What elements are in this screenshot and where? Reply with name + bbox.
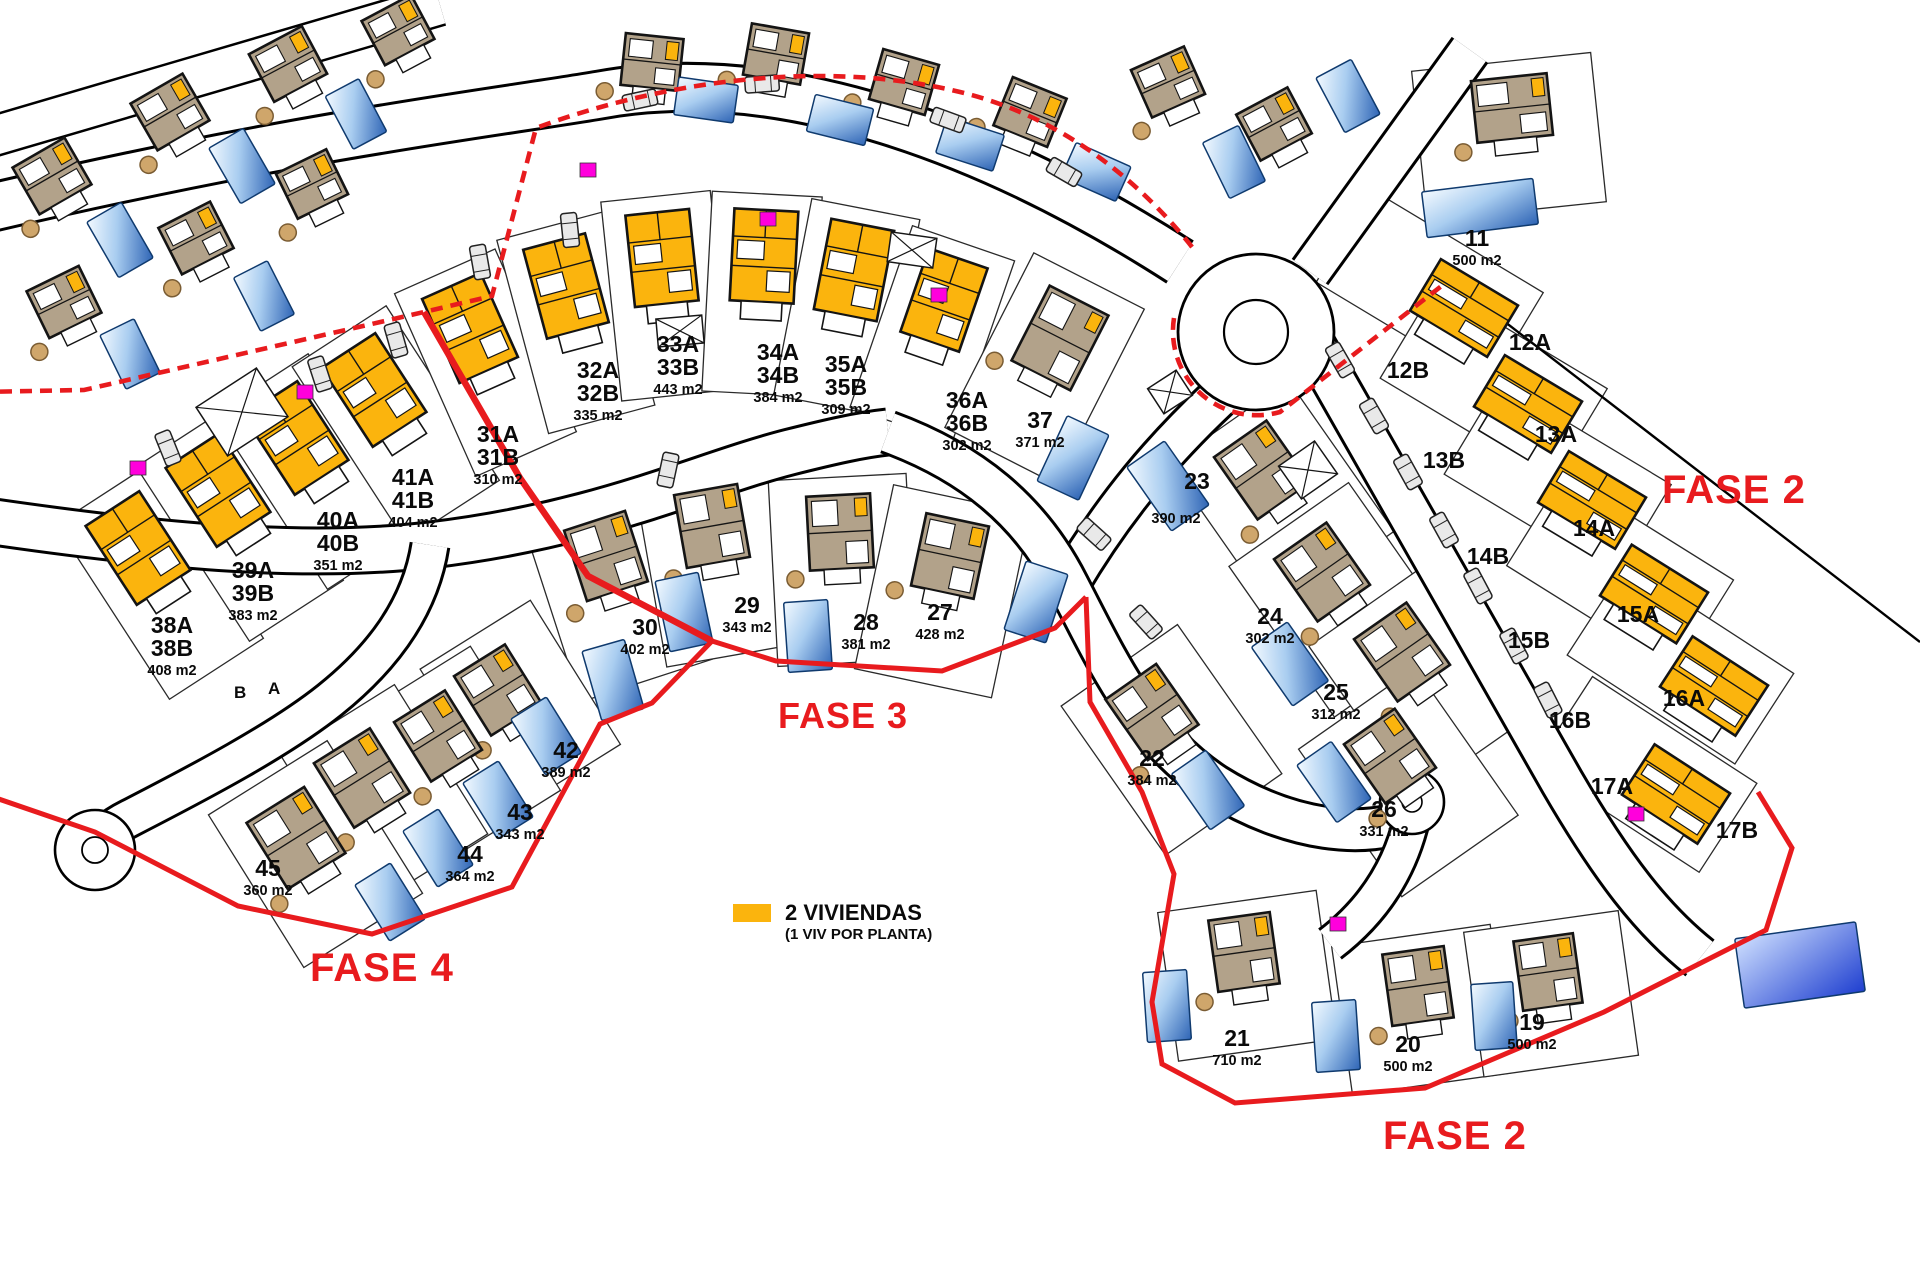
svg-text:36B: 36B — [946, 410, 988, 436]
site-plan-svg: 38A38B408 m239A39B383 m240A40B351 m241A4… — [0, 0, 1920, 1280]
house-context — [137, 202, 241, 300]
svg-text:500 m2: 500 m2 — [1507, 1037, 1556, 1053]
svg-text:389 m2: 389 m2 — [541, 765, 590, 781]
svg-text:384 m2: 384 m2 — [753, 390, 802, 406]
plot-label-34: 34A34B384 m2 — [753, 339, 802, 406]
magenta-marker — [931, 288, 947, 302]
plot-label-15: 15B — [1508, 627, 1550, 653]
svg-text:335 m2: 335 m2 — [573, 408, 622, 424]
plot-label-12: 12B — [1387, 357, 1429, 383]
phase-label-fase4: FASE 4 — [310, 948, 454, 988]
phase-label-fase2-right: FASE 2 — [1662, 470, 1806, 510]
pool — [87, 202, 154, 277]
pool — [674, 77, 739, 123]
magenta-marker — [130, 461, 146, 475]
plot-label-32: 32A32B335 m2 — [573, 357, 622, 424]
svg-text:364 m2: 364 m2 — [445, 869, 494, 885]
svg-text:383 m2: 383 m2 — [228, 608, 277, 624]
plot-label-12: 12A — [1509, 329, 1551, 355]
plot-label-41: 41A41B404 m2 — [388, 464, 437, 531]
svg-text:15A: 15A — [1617, 601, 1659, 627]
svg-text:28: 28 — [853, 609, 879, 635]
svg-text:302 m2: 302 m2 — [942, 438, 991, 454]
pool — [1143, 970, 1192, 1043]
legend-swatch — [733, 904, 771, 922]
svg-text:23: 23 — [1184, 468, 1210, 494]
svg-text:443 m2: 443 m2 — [653, 382, 702, 398]
svg-text:21: 21 — [1224, 1025, 1250, 1051]
plot-label-17: 17B — [1716, 817, 1758, 843]
svg-text:384 m2: 384 m2 — [1127, 773, 1176, 789]
svg-text:408 m2: 408 m2 — [147, 663, 196, 679]
svg-text:35B: 35B — [825, 374, 867, 400]
svg-text:24: 24 — [1257, 603, 1283, 629]
pool — [1312, 1000, 1361, 1073]
svg-text:343 m2: 343 m2 — [495, 827, 544, 843]
svg-text:39B: 39B — [232, 580, 274, 606]
svg-text:331 m2: 331 m2 — [1359, 824, 1408, 840]
magenta-marker — [1628, 807, 1644, 821]
plot-label-38: 38A38B408 m2 — [147, 612, 196, 679]
svg-text:381 m2: 381 m2 — [841, 637, 890, 653]
svg-text:45: 45 — [255, 855, 281, 881]
svg-text:500 m2: 500 m2 — [1383, 1059, 1432, 1075]
legend-subtitle: (1 VIV POR PLANTA) — [785, 925, 932, 945]
svg-text:22: 22 — [1139, 745, 1165, 771]
svg-text:30: 30 — [632, 614, 658, 640]
svg-text:41B: 41B — [392, 487, 434, 513]
svg-text:25: 25 — [1323, 679, 1349, 705]
svg-text:17B: 17B — [1716, 817, 1758, 843]
svg-text:14A: 14A — [1573, 515, 1615, 541]
plot-label-17: 17A — [1591, 773, 1633, 799]
plot-label-15: 15A — [1617, 601, 1659, 627]
svg-text:500 m2: 500 m2 — [1452, 253, 1501, 269]
svg-text:27: 27 — [927, 599, 953, 625]
svg-text:309 m2: 309 m2 — [821, 402, 870, 418]
plot-label-16: 16B — [1549, 707, 1591, 733]
car — [1129, 604, 1164, 640]
plot-label-36: 36A36B302 m2 — [942, 387, 991, 454]
svg-text:17A: 17A — [1591, 773, 1633, 799]
plot-label-35: 35A35B309 m2 — [821, 351, 870, 418]
plot-label-23: 23 — [1184, 468, 1210, 494]
house-context — [1109, 46, 1211, 142]
house-context — [5, 266, 108, 363]
svg-text:42: 42 — [553, 737, 579, 763]
svg-text:19: 19 — [1519, 1009, 1545, 1035]
plot-label-16: 16A — [1663, 685, 1705, 711]
svg-text:14B: 14B — [1467, 543, 1509, 569]
svg-text:12B: 12B — [1387, 357, 1429, 383]
svg-text:38B: 38B — [151, 635, 193, 661]
plot-label-40: 40A40B351 m2 — [313, 507, 362, 574]
plot-label-13: 13A — [1535, 421, 1577, 447]
svg-text:402 m2: 402 m2 — [620, 642, 669, 658]
svg-text:31B: 31B — [477, 444, 519, 470]
pool — [1316, 59, 1380, 133]
svg-text:43: 43 — [507, 799, 533, 825]
plot-label-31: 31A31B310 m2 — [473, 421, 522, 488]
svg-text:710 m2: 710 m2 — [1212, 1053, 1261, 1069]
svg-text:371 m2: 371 m2 — [1015, 435, 1064, 451]
svg-text:29: 29 — [734, 592, 760, 618]
phase-label-fase3: FASE 3 — [778, 698, 908, 734]
svg-text:26: 26 — [1371, 796, 1397, 822]
legend: 2 VIVIENDAS (1 VIV POR PLANTA) — [733, 900, 932, 945]
svg-text:15B: 15B — [1508, 627, 1550, 653]
svg-text:351 m2: 351 m2 — [313, 558, 362, 574]
svg-text:390 m2: 390 m2 — [1151, 511, 1200, 527]
svg-text:428 m2: 428 m2 — [915, 627, 964, 643]
svg-text:302 m2: 302 m2 — [1245, 631, 1294, 647]
plot-label-23: 390 m2 — [1151, 511, 1200, 527]
plot-label-14: 14B — [1467, 543, 1509, 569]
svg-text:37: 37 — [1027, 407, 1053, 433]
plot-label-39: 39A39B383 m2 — [228, 557, 277, 624]
svg-text:44: 44 — [457, 841, 483, 867]
culdesac-left-island — [82, 837, 108, 863]
svg-text:20: 20 — [1395, 1031, 1421, 1057]
site-plan: 38A38B408 m239A39B383 m240A40B351 m241A4… — [0, 0, 1920, 1280]
magenta-marker — [297, 385, 313, 399]
construction-x-marker — [887, 232, 937, 268]
svg-text:16A: 16A — [1663, 685, 1705, 711]
phase-label-fase2-bottom: FASE 2 — [1383, 1116, 1527, 1156]
pool — [233, 261, 294, 332]
street-letter-b: B — [234, 684, 246, 701]
magenta-marker — [1330, 917, 1346, 931]
plot-label-13: 13B — [1423, 447, 1465, 473]
svg-text:310 m2: 310 m2 — [473, 472, 522, 488]
svg-text:13B: 13B — [1423, 447, 1465, 473]
roundabout-island — [1224, 300, 1288, 364]
legend-title: 2 VIVIENDAS — [785, 900, 932, 925]
car — [560, 212, 579, 247]
plot-label-14: 14A — [1573, 515, 1615, 541]
svg-text:33B: 33B — [657, 354, 699, 380]
svg-text:312 m2: 312 m2 — [1311, 707, 1360, 723]
svg-text:12A: 12A — [1509, 329, 1551, 355]
svg-text:343 m2: 343 m2 — [722, 620, 771, 636]
svg-text:11: 11 — [1465, 225, 1490, 251]
street-letter-a: A — [268, 680, 280, 697]
svg-text:404 m2: 404 m2 — [388, 515, 437, 531]
svg-text:16B: 16B — [1549, 707, 1591, 733]
magenta-marker — [760, 212, 776, 226]
svg-text:13A: 13A — [1535, 421, 1577, 447]
svg-text:40B: 40B — [317, 530, 359, 556]
svg-text:34B: 34B — [757, 362, 799, 388]
svg-text:32B: 32B — [577, 380, 619, 406]
svg-text:360 m2: 360 m2 — [243, 883, 292, 899]
plot-label-33: 33A33B443 m2 — [653, 331, 702, 398]
legend-text: 2 VIVIENDAS (1 VIV POR PLANTA) — [785, 900, 932, 945]
magenta-marker — [580, 163, 596, 177]
